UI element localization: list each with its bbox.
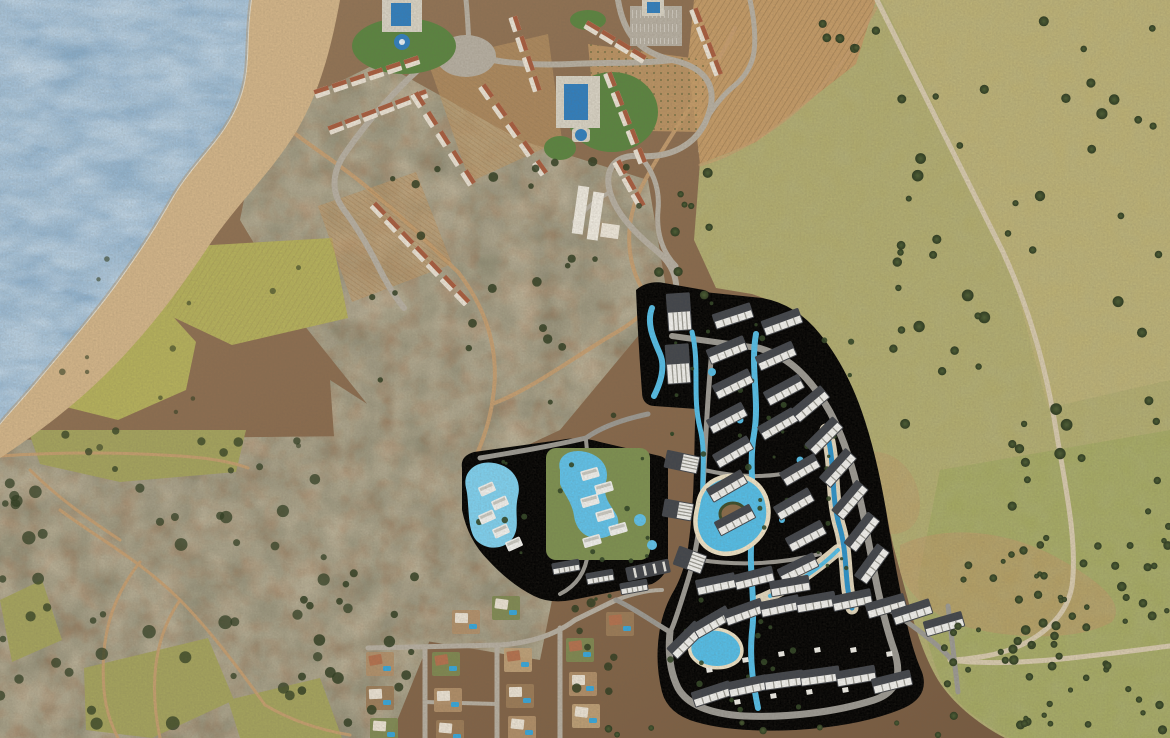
- aerial-screenshot: [0, 0, 1170, 738]
- photo-grain-overlay: [0, 0, 1170, 738]
- aerial-canvas: [0, 0, 1170, 738]
